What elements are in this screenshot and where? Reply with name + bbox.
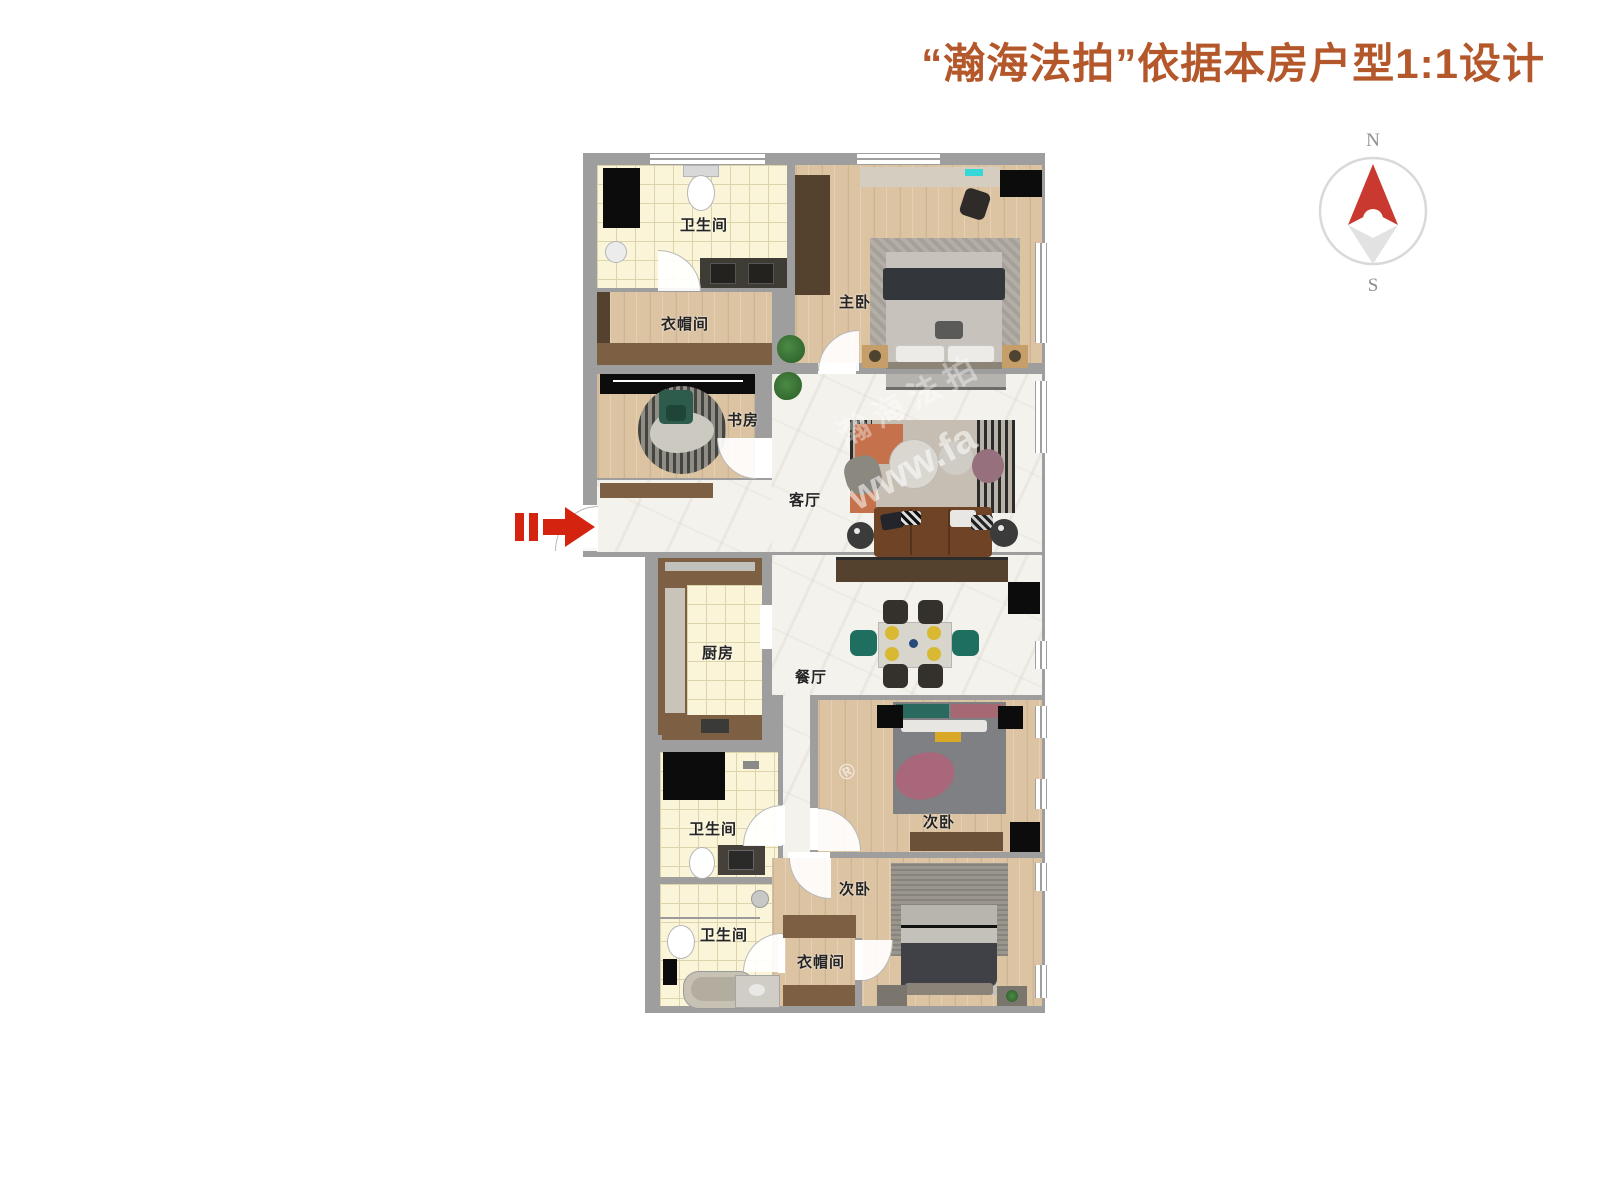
- window-right-bedroom-mid-1: [1035, 706, 1047, 738]
- dining-chair-top-1: [883, 600, 908, 624]
- study-wardrobe-rail: [613, 380, 743, 382]
- page-title: “瀚海法拍”依据本房户型1:1设计: [921, 30, 1545, 91]
- dining-chair-teal-right: [952, 630, 979, 656]
- living-coffee-table: [889, 439, 939, 489]
- cloak-bottom-door-opening: [855, 940, 862, 980]
- bath-mid-toilet: [689, 847, 715, 879]
- cloak-bottom-wardrobe-top: [783, 915, 856, 938]
- study-door-opening: [755, 438, 772, 478]
- bath-top-shower-box: [603, 168, 640, 228]
- kitchen-sink-counter: [665, 562, 755, 571]
- master-headboard: [886, 362, 1002, 369]
- room-label-bath-top: 卫生间: [680, 214, 728, 235]
- window-right-bedroom-bottom-2: [1035, 965, 1047, 998]
- dining-chair-bottom-2: [918, 664, 943, 688]
- end-table-dot-right: [998, 525, 1004, 531]
- master-pillow-left: [895, 345, 945, 363]
- master-monitor: [965, 169, 983, 176]
- bedroom-bottom-blanket: [901, 943, 997, 987]
- bedroom-mid-nightstand-right: [998, 706, 1023, 729]
- kitchen-appliance-column: [665, 588, 685, 713]
- bedroom-mid-nightstand-left: [877, 705, 903, 728]
- entry-shoe-cabinet: [600, 483, 713, 498]
- living-balloon-chair: [972, 449, 1004, 483]
- bath-mid-shower-head: [743, 761, 759, 769]
- bedroom-bottom-headboard: [901, 905, 997, 928]
- room-label-bath-mid: 卫生间: [689, 818, 737, 839]
- bedroom-mid-pillow-white: [901, 720, 987, 732]
- study-chair: [666, 405, 686, 421]
- dining-fridge: [1008, 582, 1040, 614]
- master-bed-blanket: [883, 268, 1005, 300]
- bedroom-bottom-nightstand-left: [877, 985, 907, 1006]
- vanity-sink-right: [748, 263, 774, 284]
- window-right-dining: [1035, 641, 1047, 669]
- living-end-table-right: [990, 519, 1018, 547]
- master-lamp-left: [869, 350, 881, 362]
- window-top-bath: [650, 153, 765, 165]
- bedroom-mid-yellow-throw: [935, 732, 961, 742]
- bedroom-mid-pillow-teal: [896, 704, 949, 718]
- room-label-bath-bottom: 卫生间: [700, 924, 748, 945]
- dining-sideboard: [836, 557, 1008, 582]
- window-right-bedroom-bottom-1: [1035, 863, 1047, 891]
- master-wardrobe: [795, 175, 830, 295]
- entrance-arrow-icon: [515, 504, 597, 550]
- shower-basin: [749, 984, 765, 996]
- room-label-kitchen: 厨房: [702, 642, 734, 663]
- living-tv-console: [886, 374, 1006, 390]
- bedroom-mid-black-cabinet: [1010, 822, 1040, 852]
- bedroom-bottom-bench: [905, 983, 993, 995]
- dining-chair-teal-left: [850, 630, 877, 656]
- master-bed-bench: [935, 321, 963, 339]
- bath-mid-sink: [728, 850, 754, 870]
- plant-icon-1: [777, 335, 805, 363]
- room-label-dining-room: 餐厅: [795, 666, 827, 687]
- room-label-cloak-top: 衣帽间: [661, 313, 709, 334]
- room-label-bedroom-mid: 次卧: [923, 811, 955, 832]
- bedroom-mid-door-opening: [810, 808, 818, 850]
- page: “瀚海法拍”依据本房户型1:1设计 N S: [0, 0, 1600, 1200]
- window-right-bedroom-mid-2: [1035, 779, 1047, 809]
- window-right-living: [1035, 381, 1047, 453]
- hallway-floor: [783, 693, 810, 858]
- bath-bottom-toilet: [667, 925, 695, 959]
- bath-mid-cabinet: [663, 752, 725, 800]
- bath-bottom-partition: [660, 917, 760, 919]
- cloak-top-wardrobe-bottom: [597, 343, 772, 365]
- cloak-bottom-wardrobe-bottom: [783, 985, 856, 1006]
- dining-plate-1: [885, 626, 899, 640]
- window-right-master: [1035, 243, 1047, 343]
- compass: N S: [1316, 130, 1430, 297]
- window-top-master: [857, 153, 940, 165]
- master-lamp-right: [1009, 350, 1021, 362]
- room-label-living-room: 客厅: [789, 489, 821, 510]
- dining-chair-top-2: [918, 600, 943, 624]
- bedroom-mid-pillow-pink: [951, 704, 1003, 718]
- room-label-study: 书房: [727, 409, 759, 430]
- kitchen-door-opening: [760, 605, 772, 649]
- bath-bottom-black-unit: [663, 959, 677, 985]
- compass-rose-icon: [1316, 152, 1430, 270]
- end-table-dot-left: [854, 528, 860, 534]
- toilet-icon: [687, 175, 715, 211]
- bath-top-sink: [605, 241, 627, 263]
- master-pillow-right: [947, 345, 995, 363]
- dining-plate-4: [927, 647, 941, 661]
- sofa-pillow-striped-1: [901, 511, 921, 525]
- floor-plan: 卫生间 衣帽间 主卧 书房 客厅 厨房 餐厅 卫生间 次卧 卫生间 次卧 衣帽间…: [583, 153, 1051, 1015]
- compass-south-label: S: [1316, 275, 1430, 297]
- dining-centerpiece: [909, 639, 918, 648]
- dining-plate-2: [927, 626, 941, 640]
- dining-chair-bottom-1: [883, 664, 908, 688]
- room-label-cloak-bottom: 衣帽间: [797, 951, 845, 972]
- master-tv: [1000, 170, 1042, 197]
- bedroom-mid-dresser: [910, 832, 1003, 851]
- room-label-bedroom-bottom: 次卧: [839, 878, 871, 899]
- vanity-sink-left: [710, 263, 736, 284]
- compass-north-label: N: [1316, 130, 1430, 152]
- living-end-table-left: [847, 522, 874, 549]
- room-label-master-bedroom: 主卧: [839, 291, 871, 312]
- plant-icon-3: [1006, 990, 1018, 1002]
- kitchen-stove: [701, 719, 729, 733]
- dining-plate-3: [885, 647, 899, 661]
- bath-bottom-washer: [751, 890, 769, 908]
- living-side-round-table: [939, 441, 973, 475]
